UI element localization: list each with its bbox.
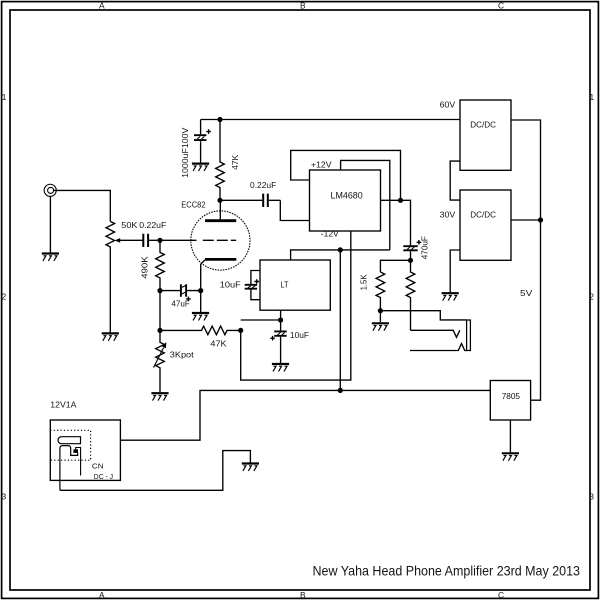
svg-text:47K: 47K <box>231 154 240 170</box>
svg-text:30V: 30V <box>440 211 456 220</box>
svg-text:490K: 490K <box>141 256 150 279</box>
svg-text:ECC82: ECC82 <box>181 200 205 210</box>
svg-text:B: B <box>300 0 306 10</box>
svg-text:DC/DC: DC/DC <box>470 210 496 220</box>
svg-text:LM4680: LM4680 <box>331 191 363 201</box>
svg-text:5V: 5V <box>520 289 533 298</box>
svg-text:0.22uF: 0.22uF <box>139 221 166 230</box>
svg-text:2: 2 <box>2 292 7 302</box>
svg-text:7805: 7805 <box>502 391 521 401</box>
svg-text:0.22uF: 0.22uF <box>250 181 276 190</box>
svg-text:2: 2 <box>589 292 594 302</box>
svg-text:+12V: +12V <box>311 160 332 169</box>
svg-text:47K: 47K <box>210 340 227 349</box>
svg-text:B: B <box>300 590 306 600</box>
svg-text:10uF: 10uF <box>290 331 309 340</box>
svg-text:CN: CN <box>92 462 104 471</box>
svg-text:470uF: 470uF <box>421 236 430 259</box>
svg-text:1000uF100V: 1000uF100V <box>181 127 190 178</box>
svg-text:LT: LT <box>281 281 289 290</box>
svg-text:1.5K: 1.5K <box>360 274 369 290</box>
svg-text:A: A <box>99 590 105 600</box>
svg-text:DC - J: DC - J <box>94 472 113 481</box>
svg-text:C: C <box>498 0 504 10</box>
svg-text:1: 1 <box>2 92 7 102</box>
svg-text:10uF: 10uF <box>220 281 241 290</box>
svg-text:1: 1 <box>590 92 595 102</box>
svg-text:50K: 50K <box>121 221 138 230</box>
svg-text:C: C <box>498 590 504 600</box>
svg-text:12V1A: 12V1A <box>50 401 77 410</box>
svg-text:3: 3 <box>589 491 594 501</box>
svg-text:DC/DC: DC/DC <box>470 120 496 130</box>
svg-text:-12V: -12V <box>321 229 339 238</box>
svg-text:A: A <box>99 0 105 10</box>
svg-text:3Kpot: 3Kpot <box>170 350 195 359</box>
svg-text:60V: 60V <box>440 100 456 109</box>
svg-text:New Yaha Head Phone Amplifier: New Yaha Head Phone Amplifier 23rd May 2… <box>313 563 581 578</box>
svg-text:3: 3 <box>2 491 7 501</box>
svg-text:47uF: 47uF <box>171 300 189 309</box>
